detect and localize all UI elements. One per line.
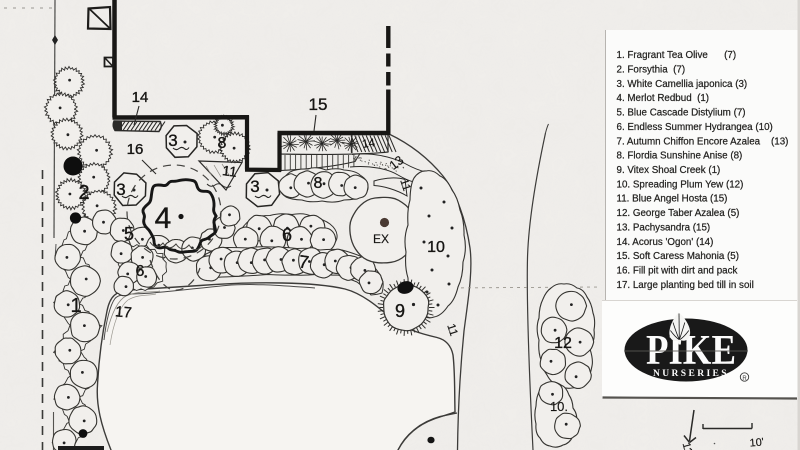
svg-text:6: 6	[136, 263, 145, 280]
svg-text:NURSERIES: NURSERIES	[653, 369, 729, 379]
svg-text:8. Flordia Sunshine Anise (8): 8. Flordia Sunshine Anise (8)	[617, 151, 743, 162]
svg-text:7. Autumn Chiffon Encore Azale: 7. Autumn Chiffon Encore Azalea (13)	[617, 136, 789, 147]
svg-text:14: 14	[132, 89, 149, 106]
svg-text:1. Fragrant Tea Olive (7): 1. Fragrant Tea Olive (7)	[617, 50, 737, 61]
svg-text:16: 16	[127, 141, 144, 158]
svg-text:16. Fill pit with dirt and pac: 16. Fill pit with dirt and pack	[617, 265, 738, 276]
svg-text:6: 6	[282, 225, 292, 245]
svg-text:1: 1	[70, 295, 81, 317]
svg-text:11: 11	[221, 162, 238, 180]
svg-text:17: 17	[114, 303, 132, 321]
svg-text:R: R	[742, 376, 747, 382]
svg-text:10.: 10.	[550, 399, 568, 414]
svg-text:13. Pachysandra (15): 13. Pachysandra (15)	[617, 222, 711, 233]
svg-text:11. Blue Angel Hosta (15): 11. Blue Angel Hosta (15)	[617, 194, 728, 205]
svg-text:2: 2	[78, 182, 89, 204]
svg-text:8: 8	[314, 175, 323, 192]
svg-text:14: 14	[361, 137, 376, 151]
svg-text:5. Blue Cascade Distylium (7): 5. Blue Cascade Distylium (7)	[617, 108, 746, 119]
svg-text:3: 3	[250, 177, 259, 196]
svg-text:12: 12	[554, 335, 572, 352]
svg-text:15. Soft Caress Mahonia (5): 15. Soft Caress Mahonia (5)	[617, 251, 740, 262]
svg-text:4. Merlot Redbud (1): 4. Merlot Redbud (1)	[617, 93, 710, 104]
svg-text:9: 9	[395, 301, 405, 321]
svg-text:14. Acorus 'Ogon' (14): 14. Acorus 'Ogon' (14)	[617, 237, 714, 248]
svg-text:12. George Taber Azalea (5): 12. George Taber Azalea (5)	[617, 208, 740, 219]
svg-text:3. White Camellia japonica (3): 3. White Camellia japonica (3)	[617, 79, 748, 90]
svg-text:9. Vitex Shoal Creek (1): 9. Vitex Shoal Creek (1)	[617, 165, 721, 176]
svg-text:EX: EX	[373, 232, 389, 246]
svg-text:4: 4	[155, 202, 172, 235]
svg-text:15: 15	[309, 95, 328, 114]
svg-text:2. Forsythia (7): 2. Forsythia (7)	[617, 65, 686, 76]
svg-text:17. Large planting bed till in: 17. Large planting bed till in soil	[617, 280, 754, 291]
svg-text:5: 5	[124, 224, 134, 244]
svg-text:8: 8	[218, 135, 227, 152]
svg-text:3: 3	[168, 131, 177, 150]
svg-text:10: 10	[427, 239, 445, 256]
svg-text:10': 10'	[749, 436, 764, 449]
svg-text:10. Spreading Plum Yew (12): 10. Spreading Plum Yew (12)	[617, 179, 744, 190]
svg-text:3: 3	[116, 180, 125, 199]
svg-text:6. Endless Summer Hydrangea (1: 6. Endless Summer Hydrangea (10)	[617, 122, 773, 133]
